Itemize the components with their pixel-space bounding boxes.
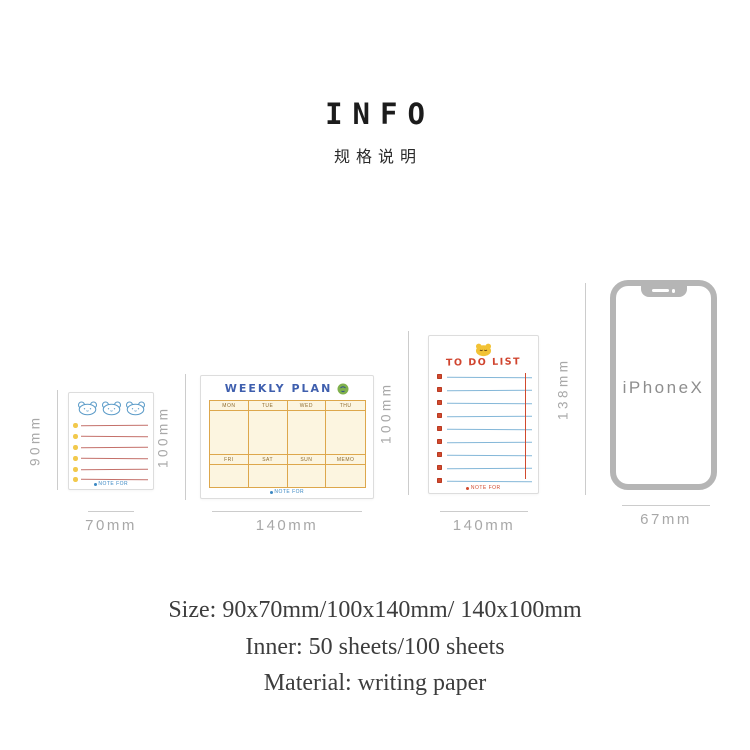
checkbox-icon — [437, 400, 442, 405]
page-subtitle: 规格说明 — [0, 143, 750, 167]
todo-line — [435, 480, 532, 483]
todo-line — [435, 467, 532, 470]
memo-height-line — [57, 390, 58, 490]
weekly-cell — [288, 411, 327, 455]
weekly-day-wed: WED — [288, 401, 327, 411]
memo-brand-note: NOTE FOR — [69, 481, 153, 487]
iphone-height-label: 138mm — [554, 283, 572, 495]
weekly-width-line — [212, 511, 362, 512]
page-title: INFO — [0, 97, 750, 131]
spec-material: Material: writing paper — [0, 665, 750, 702]
todo-line — [435, 415, 532, 418]
todo-line — [435, 428, 532, 431]
weekly-day-fri: FRI — [210, 455, 249, 465]
weekly-brand-note: NOTE FOR — [201, 489, 373, 495]
iphone-label: iPhoneX — [616, 378, 711, 398]
weekly-height-label: 100mm — [154, 374, 172, 500]
note-dot-icon — [94, 483, 97, 486]
todo-line — [435, 454, 532, 457]
todo-line — [435, 389, 532, 392]
bullet-dot-icon — [73, 445, 78, 450]
memo-pad: NOTE FOR — [68, 392, 154, 490]
bear-face-icon — [77, 400, 98, 416]
todo-brand-note: NOTE FOR — [429, 485, 538, 491]
memo-height-label: 90mm — [26, 390, 44, 490]
bullet-dot-icon — [73, 467, 78, 472]
checkbox-icon — [437, 387, 442, 392]
weekly-cell — [210, 465, 249, 487]
weekly-day-sun: SUN — [288, 455, 327, 465]
note-dot-icon — [466, 487, 469, 490]
checkbox-icon — [437, 452, 442, 457]
weekly-title: WEEKLY PLAN — [225, 382, 333, 395]
todo-height-line — [408, 331, 409, 495]
todo-margin-line — [525, 373, 526, 479]
bear-face-icon — [125, 400, 146, 416]
memo-width-label: 70mm — [76, 517, 146, 534]
bullet-dot-icon — [73, 456, 78, 461]
weekly-grid: MON TUE WED THU FRI SAT SUN MEMO — [209, 400, 366, 488]
frog-badge-icon — [337, 383, 349, 395]
iphone-width-line — [622, 505, 710, 506]
weekly-cell — [249, 411, 288, 455]
todo-width-line — [440, 511, 528, 512]
checkbox-icon — [437, 439, 442, 444]
iphone-width-label: 67mm — [628, 511, 704, 528]
memo-width-line — [88, 511, 134, 512]
checkbox-icon — [437, 478, 442, 483]
memo-bears-row — [69, 400, 153, 416]
checkbox-icon — [437, 426, 442, 431]
spec-text-block: Size: 90x70mm/100x140mm/ 140x100mm Inner… — [0, 592, 750, 702]
bullet-dot-icon — [73, 434, 78, 439]
iphone-outline: iPhoneX — [610, 280, 717, 490]
weekly-plan-pad: WEEKLY PLAN MON TUE WED THU FRI SAT SUN … — [200, 375, 374, 499]
spec-inner: Inner: 50 sheets/100 sheets — [0, 629, 750, 666]
todo-line — [435, 441, 532, 444]
todo-width-label: 140mm — [444, 517, 524, 534]
todo-line — [435, 402, 532, 405]
bear-face-icon — [101, 400, 122, 416]
weekly-cell — [326, 465, 365, 487]
checkbox-icon — [437, 374, 442, 379]
weekly-cell — [326, 411, 365, 455]
weekly-day-thu: THU — [326, 401, 365, 411]
bullet-dot-icon — [73, 423, 78, 428]
weekly-cell — [249, 465, 288, 487]
memo-line — [72, 435, 148, 438]
note-dot-icon — [270, 491, 273, 494]
iphone-notch — [641, 285, 687, 297]
cat-face-icon — [429, 342, 538, 357]
spec-size: Size: 90x70mm/100x140mm/ 140x100mm — [0, 592, 750, 629]
weekly-cell — [288, 465, 327, 487]
weekly-title-row: WEEKLY PLAN — [201, 382, 373, 395]
camera-icon — [672, 289, 676, 293]
product-info-graphic: INFO 规格说明 90mm NOTE FOR 70mm 100mm WEEKL… — [0, 0, 750, 750]
todo-title: TO DO LIST — [429, 356, 538, 369]
memo-line — [72, 446, 148, 449]
todo-list-pad: TO DO LIST NOTE FOR — [428, 335, 539, 494]
speaker-icon — [652, 289, 669, 292]
todo-height-label: 100mm — [377, 331, 395, 495]
weekly-height-line — [185, 374, 186, 500]
todo-line — [435, 376, 532, 379]
memo-line — [72, 424, 148, 427]
checkbox-icon — [437, 413, 442, 418]
memo-line — [72, 468, 148, 471]
weekly-day-sat: SAT — [249, 455, 288, 465]
weekly-day-memo: MEMO — [326, 455, 365, 465]
weekly-day-mon: MON — [210, 401, 249, 411]
weekly-day-tue: TUE — [249, 401, 288, 411]
weekly-width-label: 140mm — [247, 517, 327, 534]
checkbox-icon — [437, 465, 442, 470]
memo-line — [72, 457, 148, 460]
weekly-cell — [210, 411, 249, 455]
iphone-height-line — [585, 283, 586, 495]
